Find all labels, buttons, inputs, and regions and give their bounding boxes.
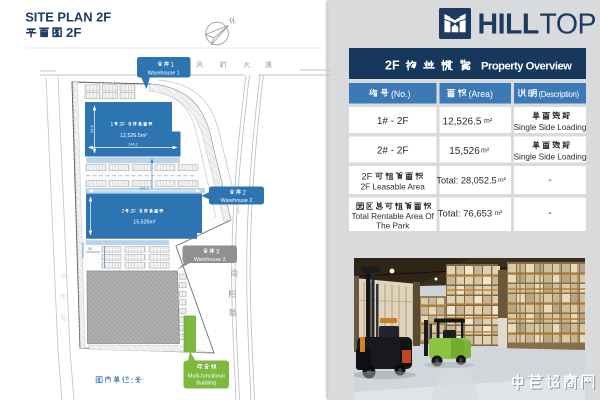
svg-text:Property Overview: Property Overview bbox=[481, 61, 572, 73]
svg-text:Total: 76,653: Total: 76,653 bbox=[438, 209, 492, 220]
svg-text:Warehouse 2: Warehouse 2 bbox=[221, 198, 253, 204]
svg-text:(Area): (Area) bbox=[469, 89, 494, 99]
svg-text:2F: 2F bbox=[362, 172, 373, 182]
svg-text:1# - 2F: 1# - 2F bbox=[377, 116, 409, 127]
svg-text:2F: 2F bbox=[66, 25, 81, 40]
svg-text:m²: m² bbox=[481, 148, 490, 155]
svg-text:Total: 28,052.5: Total: 28,052.5 bbox=[436, 176, 496, 186]
svg-text:(No.): (No.) bbox=[391, 89, 411, 99]
svg-text:15,526m²: 15,526m² bbox=[133, 219, 156, 225]
svg-text:HILL: HILL bbox=[478, 9, 539, 41]
svg-text:2F: 2F bbox=[119, 122, 125, 128]
svg-text:30: 30 bbox=[88, 247, 92, 251]
svg-text:Total Rentable Area Of: Total Rentable Area Of bbox=[352, 212, 435, 221]
svg-text:2F: 2F bbox=[130, 209, 136, 215]
svg-text:-: - bbox=[548, 208, 551, 219]
svg-text:2# - 2F: 2# - 2F bbox=[377, 146, 409, 157]
svg-text:The Park: The Park bbox=[376, 222, 410, 231]
svg-text:m²: m² bbox=[484, 118, 493, 125]
svg-text:TOP: TOP bbox=[540, 9, 597, 41]
svg-text:64.8: 64.8 bbox=[90, 125, 94, 132]
svg-text:Single Side Loading: Single Side Loading bbox=[514, 123, 587, 132]
svg-text:Warehouse 3: Warehouse 3 bbox=[194, 257, 226, 263]
svg-text:m²: m² bbox=[495, 210, 504, 217]
svg-text:(Description): (Description) bbox=[539, 90, 580, 99]
svg-text:2F Leasable Area: 2F Leasable Area bbox=[361, 183, 426, 192]
svg-text:12,526.5m²: 12,526.5m² bbox=[120, 133, 147, 139]
svg-text:SITE PLAN 2F: SITE PLAN 2F bbox=[25, 10, 111, 25]
svg-text:2F: 2F bbox=[385, 59, 400, 73]
svg-text:-: - bbox=[548, 175, 551, 186]
svg-text:m²: m² bbox=[498, 177, 507, 184]
svg-text::: : bbox=[131, 375, 134, 385]
svg-text:12,526.5: 12,526.5 bbox=[443, 117, 482, 128]
svg-text:2: 2 bbox=[122, 209, 125, 215]
svg-text:146.2: 146.2 bbox=[139, 187, 149, 191]
svg-text:Single Side Loading: Single Side Loading bbox=[514, 153, 587, 162]
svg-text:15,526: 15,526 bbox=[449, 146, 480, 157]
svg-text:Multi-functional: Multi-functional bbox=[188, 373, 225, 379]
svg-text:1: 1 bbox=[111, 122, 114, 128]
svg-text:Building: Building bbox=[196, 381, 216, 387]
svg-text:Warehouse 1: Warehouse 1 bbox=[148, 71, 180, 77]
svg-text:146.2: 146.2 bbox=[128, 143, 138, 147]
